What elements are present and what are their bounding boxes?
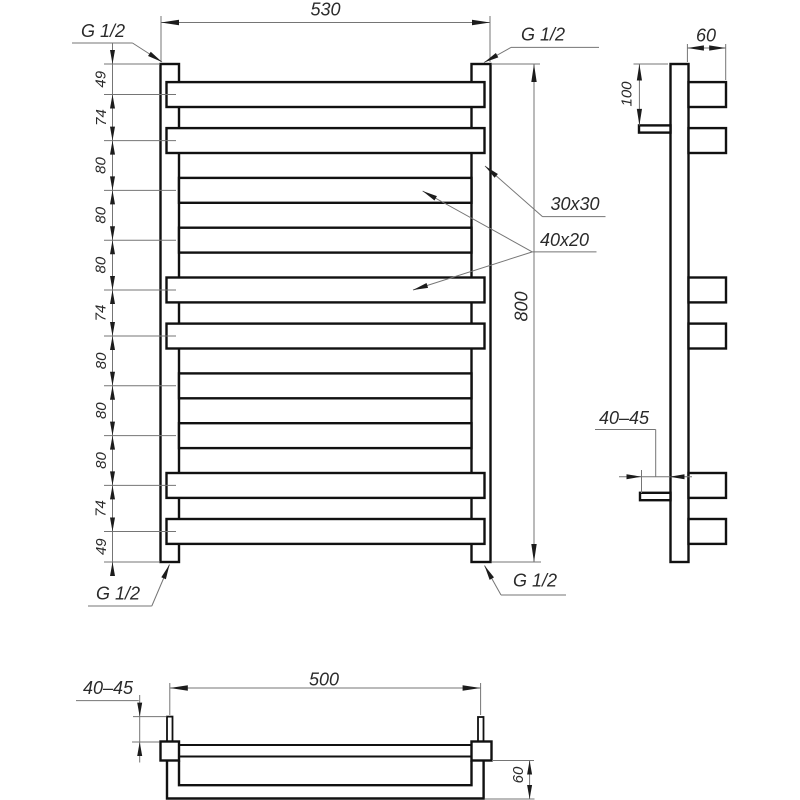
svg-text:40–45: 40–45 xyxy=(599,408,650,428)
svg-text:30x30: 30x30 xyxy=(550,194,599,214)
svg-text:80: 80 xyxy=(93,256,110,273)
svg-text:49: 49 xyxy=(93,538,110,555)
svg-text:800: 800 xyxy=(511,291,531,321)
svg-text:530: 530 xyxy=(310,0,340,19)
svg-text:60: 60 xyxy=(696,25,716,45)
svg-text:40–45: 40–45 xyxy=(83,678,134,698)
svg-text:80: 80 xyxy=(93,402,110,419)
svg-text:40x20: 40x20 xyxy=(540,230,589,250)
svg-text:100: 100 xyxy=(619,81,636,107)
svg-text:74: 74 xyxy=(93,109,110,126)
svg-text:500: 500 xyxy=(309,669,339,689)
svg-text:74: 74 xyxy=(93,305,110,322)
svg-text:80: 80 xyxy=(93,157,110,174)
svg-text:80: 80 xyxy=(93,452,110,469)
svg-text:74: 74 xyxy=(93,500,110,517)
svg-text:G 1/2: G 1/2 xyxy=(521,24,565,44)
svg-text:G 1/2: G 1/2 xyxy=(81,21,125,41)
svg-text:80: 80 xyxy=(93,206,110,223)
svg-text:80: 80 xyxy=(93,352,110,369)
svg-text:G 1/2: G 1/2 xyxy=(513,570,557,590)
svg-text:49: 49 xyxy=(93,70,110,87)
svg-text:60: 60 xyxy=(510,766,527,783)
svg-text:G 1/2: G 1/2 xyxy=(96,583,140,603)
